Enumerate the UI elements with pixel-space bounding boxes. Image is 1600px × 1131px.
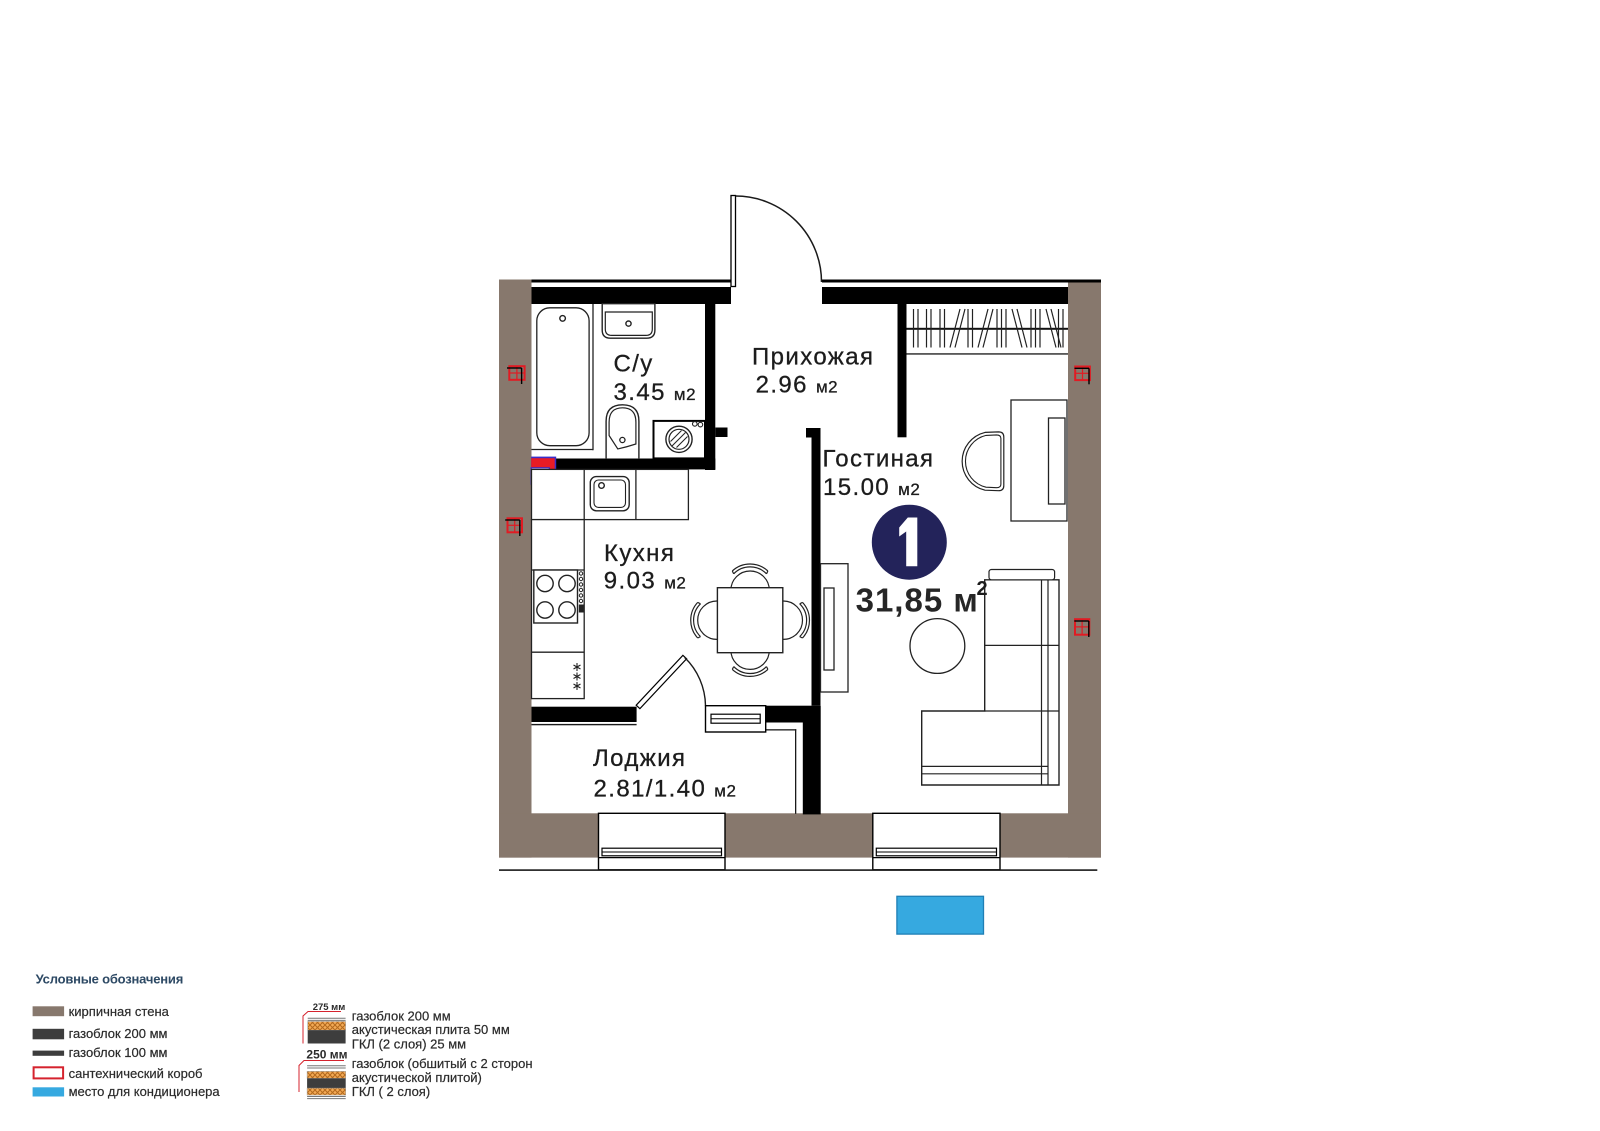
svg-text:газоблок 200 мм: газоблок 200 мм: [69, 1026, 168, 1041]
svg-text:3.45 м2: 3.45 м2: [614, 379, 697, 406]
svg-text:сантехнический короб: сантехнический короб: [69, 1066, 203, 1081]
svg-text:кирпичная стена: кирпичная стена: [69, 1004, 170, 1019]
svg-text:ГКЛ ( 2 слоя): ГКЛ ( 2 слоя): [352, 1084, 430, 1099]
svg-text:2: 2: [977, 578, 988, 600]
svg-text:Прихожая: Прихожая: [752, 344, 874, 371]
svg-text:место для кондиционера: место для кондиционера: [69, 1084, 221, 1099]
svg-text:9.03 м2: 9.03 м2: [604, 567, 687, 594]
svg-text:2.81/1.40 м2: 2.81/1.40 м2: [594, 776, 737, 803]
svg-text:газоблок 100 мм: газоблок 100 мм: [69, 1045, 168, 1060]
svg-text:31,85 м: 31,85 м: [856, 582, 979, 619]
svg-text:акустическая плита 50 мм: акустическая плита 50 мм: [352, 1022, 510, 1037]
svg-text:акустической плитой): акустической плитой): [352, 1070, 482, 1085]
svg-text:Гостиная: Гостиная: [823, 446, 935, 473]
svg-text:С/у: С/у: [614, 351, 654, 378]
svg-text:Условные обозначения: Условные обозначения: [36, 972, 183, 987]
svg-text:15.00 м2: 15.00 м2: [823, 474, 920, 501]
svg-text:ГКЛ (2 слоя) 25 мм: ГКЛ (2 слоя) 25 мм: [352, 1037, 466, 1052]
svg-text:2.96 м2: 2.96 м2: [756, 372, 839, 399]
svg-text:Лоджия: Лоджия: [593, 745, 686, 772]
svg-text:газоблок (обшитый с 2 сторон: газоблок (обшитый с 2 сторон: [352, 1056, 533, 1071]
svg-text:250 мм: 250 мм: [306, 1047, 347, 1061]
svg-text:газоблок 200 мм: газоблок 200 мм: [352, 1008, 451, 1023]
svg-text:Кухня: Кухня: [604, 540, 675, 567]
